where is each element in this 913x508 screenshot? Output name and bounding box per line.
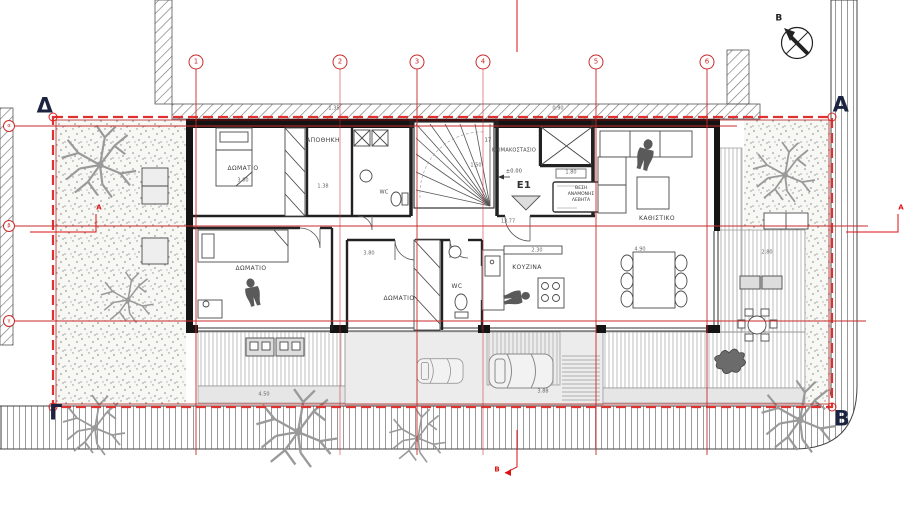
dim-driveway: 3.88 xyxy=(537,390,548,395)
dim-deck-right: 2.80 xyxy=(761,251,772,256)
dim-top-a: 1.35 xyxy=(328,107,339,112)
room-label-bedroom1: ΔΩΜΑΤΙΟ xyxy=(228,166,259,172)
corner-label-bottom-left: Γ xyxy=(49,403,63,424)
boiler-label-line1: ΘΕΣΗ xyxy=(575,186,588,191)
room-label-wc-top: WC xyxy=(380,191,389,196)
grid-row-a: α xyxy=(3,120,15,132)
staircase xyxy=(414,122,494,208)
dining-table xyxy=(621,252,687,308)
grid-column-3: 3 xyxy=(410,55,425,70)
dim-stair: 1.50 xyxy=(470,164,481,169)
outdoor-bench xyxy=(764,213,808,229)
closet-mid xyxy=(414,240,440,330)
dim-kitchen: 2.30 xyxy=(531,249,542,254)
boiler-label-line2: ΑΝΑΜΟΝΗΣ xyxy=(568,192,595,197)
section-a-right-label: Α xyxy=(898,205,903,212)
corner-label-top-right: Α xyxy=(833,95,850,116)
corner-label-bottom-right: Β xyxy=(834,409,850,430)
dim-storage: 1.38 xyxy=(317,185,328,190)
dim-dining: 4.90 xyxy=(634,248,645,253)
north-symbol xyxy=(782,28,813,59)
grid-column-1: 1 xyxy=(189,55,204,70)
dim-top-b: 0.90 xyxy=(552,107,563,112)
dim-deck-left: 4.50 xyxy=(258,393,269,398)
grid-row-b: β xyxy=(3,220,15,232)
stairs-count-label: 17 xyxy=(485,139,492,144)
closet-top xyxy=(285,128,305,216)
dim-bedroom3: 3.80 xyxy=(363,252,374,257)
grid-column-4: 4 xyxy=(476,55,491,70)
grid-column-6: 6 xyxy=(700,55,715,70)
room-label-storage: ΑΠΟΘΗΚΗ xyxy=(306,138,340,144)
room-label-living: ΚΑΘΙΣΤΙΚΟ xyxy=(639,216,675,222)
plan-drawing xyxy=(0,0,913,508)
grid-column-2: 2 xyxy=(333,55,348,70)
room-label-bedroom2: ΔΩΜΑΤΙΟ xyxy=(236,266,267,272)
entrance-id-label: E1 xyxy=(517,181,532,191)
entrance-level-label: ±0.00 xyxy=(506,170,522,175)
room-label-bedroom3: ΔΩΜΑΤΙΟ xyxy=(384,296,415,302)
dim-elevator: 1.80 xyxy=(565,171,576,176)
dim-entry: 13.77 xyxy=(501,220,515,225)
room-label-staircase: ΚΛΙΜΑΚΟΣΤΑΣΙΟ xyxy=(492,149,536,154)
grid-column-5: 5 xyxy=(589,55,604,70)
corner-label-top-left: Δ xyxy=(37,96,54,117)
room-label-wc: WC xyxy=(452,284,463,290)
dim-bedroom1: 3.60 xyxy=(237,179,248,184)
section-a-left-label: Α xyxy=(96,205,101,212)
north-label: Β xyxy=(775,15,782,24)
driveway xyxy=(345,332,603,405)
floor-plan-canvas: Δ Α Γ Β Β 1 2 3 4 5 6 α β γ Α Α Β ΔΩΜΑΤΙ… xyxy=(0,0,913,508)
grid-row-c: γ xyxy=(3,315,15,327)
section-b-label: Β xyxy=(494,467,499,474)
room-label-kitchen: ΚΟΥΖΙΝΑ xyxy=(512,265,542,271)
boiler-label-line3: ΛΕΒΗΤΑ xyxy=(572,198,590,203)
